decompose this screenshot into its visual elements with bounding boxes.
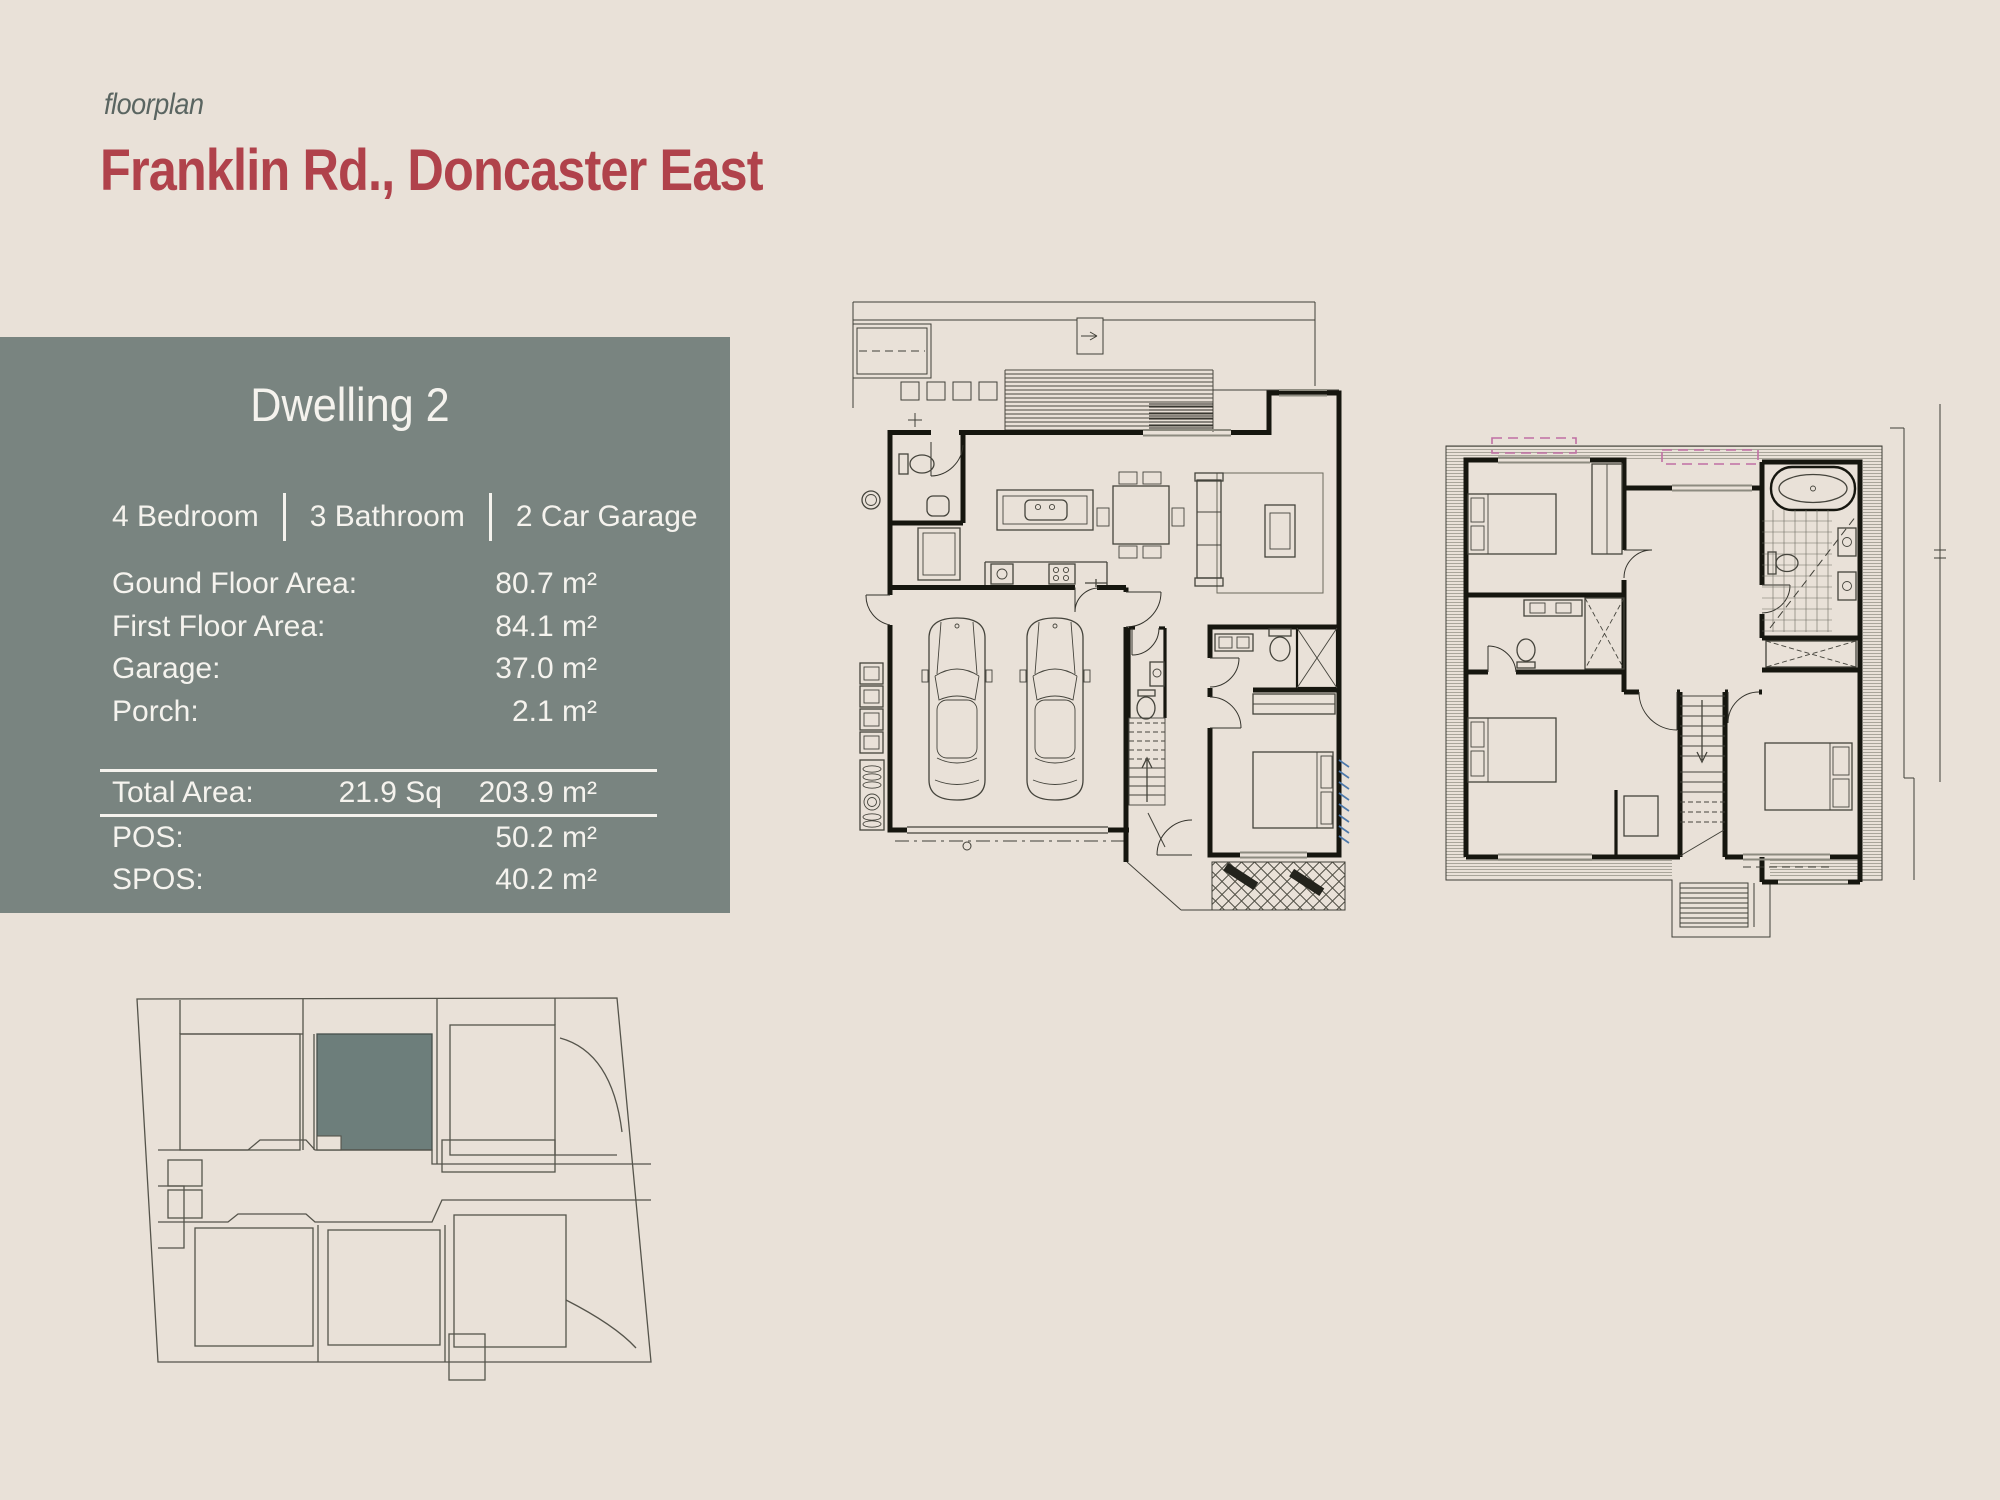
garage [866,579,1161,850]
feature-divider [489,493,492,541]
car-icon [1020,618,1090,800]
wardrobe [1766,641,1856,667]
area-label: First Floor Area: [112,606,495,649]
dwelling-title: Dwelling 2 [28,379,672,431]
planter-boxes [860,663,883,753]
bed [1765,743,1852,810]
driveway [158,1140,651,1248]
balcony-stairs [1680,883,1754,927]
ground-floor-plan-drawing [845,290,1375,940]
living-room [1195,473,1323,593]
area-table: Gound Floor Area: 80.7 m² First Floor Ar… [112,563,597,733]
ensuite [1466,595,1624,692]
skylights [901,382,997,400]
total-area-row: Total Area: 21.9 Sq 203.9 m² [100,772,657,817]
total-value: 203.9 m² [442,772,597,814]
feature-divider [283,493,286,541]
area-label: Gound Floor Area: [112,563,495,606]
bedroom-2 [1765,743,1852,810]
area-value: 37.0 m² [495,648,597,691]
powder-room [1129,628,1165,719]
garden-planters [860,663,884,830]
feature-bathrooms: 3 Bathroom [310,500,465,534]
eave-outline [853,324,931,378]
area-value: 80.7 m² [495,563,597,606]
pos-row: POS: 50.2 m² [100,817,657,859]
spos-label: SPOS: [112,859,302,901]
first-floor-plan-drawing [1440,400,1950,970]
page-title: Franklin Rd., Doncaster East [100,142,763,200]
spos-row: SPOS: 40.2 m² [100,859,657,901]
dining-table [1097,472,1184,558]
highlighted-dwelling [317,1034,432,1150]
site-boundary-lines [853,302,1315,427]
feature-bedrooms: 4 Bedroom [112,500,259,534]
bathroom [1208,627,1340,697]
area-row-garage: Garage: 37.0 m² [112,648,597,691]
area-row-porch: Porch: 2.1 m² [112,691,597,734]
pos-value: 50.2 m² [442,817,597,859]
spos-value: 40.2 m² [442,859,597,901]
area-row-first: First Floor Area: 84.1 m² [112,606,597,649]
entry-porch [1126,820,1345,910]
total-label: Total Area: [112,772,302,814]
feature-garage: 2 Car Garage [516,500,698,534]
bedroom-ground [1208,694,1342,858]
site-plan [110,990,670,1415]
bedroom-3 [1468,718,1658,857]
ground-floor-plan [845,290,1375,945]
pos-label: POS: [112,817,302,859]
total-squares: 21.9 Sq [302,772,442,814]
totals-table: Total Area: 21.9 Sq 203.9 m² POS: 50.2 m… [100,769,657,901]
water-tank [860,760,884,830]
feature-summary: 4 Bedroom 3 Bathroom 2 Car Garage [112,489,698,545]
bed [1468,718,1556,782]
site-plan-drawing [110,990,670,1410]
area-label: Garage: [112,648,495,691]
garage-cars [922,618,1090,800]
page-eyebrow: floorplan [104,88,204,122]
bathroom-first [1762,462,1860,670]
area-row-ground: Gound Floor Area: 80.7 m² [112,563,597,606]
roof-deck-slats [1005,370,1339,432]
exterior-walls [890,390,1339,855]
lower-lots [195,1215,636,1380]
kitchen [985,490,1107,587]
area-label: Porch: [112,691,512,734]
area-value: 2.1 m² [512,691,597,734]
bed [1468,494,1556,554]
car-icon [922,618,992,800]
laundry-room [862,430,963,580]
first-floor-plan [1440,400,1950,975]
bathtub [1771,467,1855,510]
landing-and-stairs [1466,692,1762,857]
dwelling-info-panel: Dwelling 2 4 Bedroom 3 Bathroom 2 Car Ga… [0,337,730,913]
stairs [1129,718,1165,847]
area-value: 84.1 m² [495,606,597,649]
